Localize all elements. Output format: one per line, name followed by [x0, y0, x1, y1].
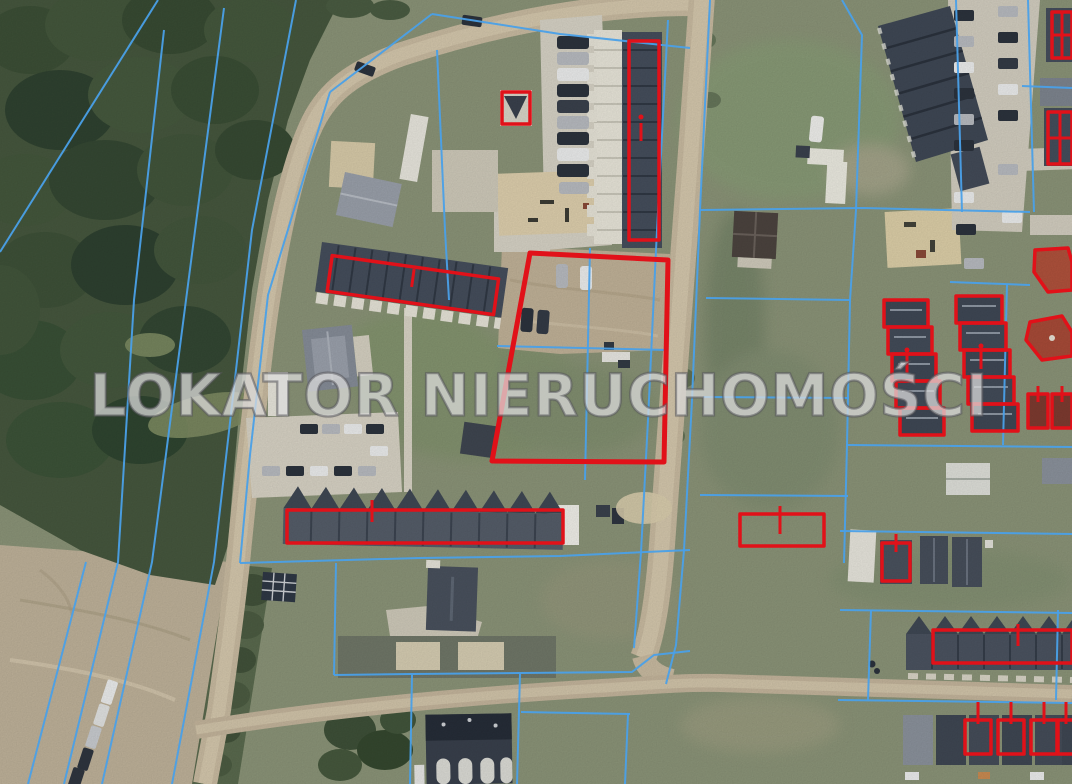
aerial-map: LOKATOR NIERUCHOMOŚCI — [0, 0, 1072, 784]
